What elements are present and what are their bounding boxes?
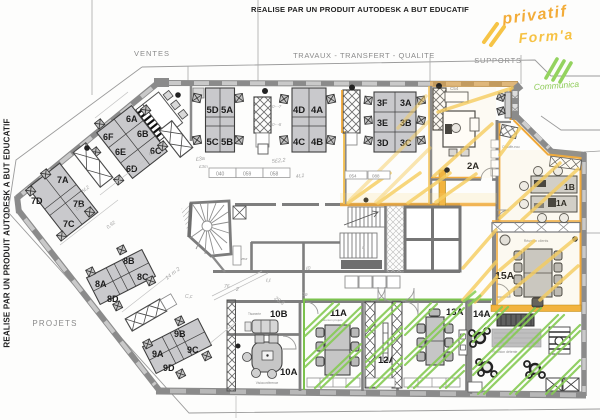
svg-text:054: 054 [349, 174, 357, 179]
svg-text:a: a [362, 245, 365, 251]
svg-text:6D: 6D [126, 164, 138, 174]
svg-text:3E: 3E [377, 118, 388, 128]
svg-text:3F: 3F [377, 98, 388, 108]
svg-text:5B: 5B [221, 137, 233, 148]
svg-text:ℓ0: ℓ0 [305, 266, 311, 272]
svg-text:5A: 5A [221, 105, 233, 116]
svg-text:4D: 4D [293, 105, 305, 116]
svg-text:Tisanerie: Tisanerie [248, 312, 261, 316]
svg-text:10B: 10B [270, 309, 288, 320]
svg-text:14A: 14A [473, 309, 491, 320]
svg-text:3ɵ: 3ɵ [302, 292, 308, 298]
svg-text:7C: 7C [63, 219, 75, 229]
svg-text:088: 088 [372, 174, 380, 179]
svg-text:5C: 5C [207, 137, 219, 148]
svg-text:7D: 7D [31, 196, 43, 206]
svg-text:ℓ,ℓ: ℓ,ℓ [265, 278, 271, 284]
svg-text:6B: 6B [137, 129, 149, 139]
svg-text:REALISE PAR UN PRODUIT AUTODES: REALISE PAR UN PRODUIT AUTODESK A BUT ED… [251, 5, 469, 14]
svg-text:C,c: C,c [185, 294, 193, 300]
svg-text:0⋅⋅⋅7: 0⋅⋅⋅7 [272, 104, 282, 109]
svg-text:059: 059 [243, 172, 252, 178]
svg-text:8B: 8B [123, 256, 135, 266]
svg-text:4A: 4A [311, 105, 323, 116]
svg-text:2: 2 [235, 287, 239, 293]
svg-text:8A: 8A [95, 279, 107, 289]
svg-text:3D: 3D [377, 138, 389, 148]
svg-text:5D: 5D [207, 105, 219, 116]
svg-text:76: 76 [224, 284, 230, 290]
svg-text:TRAVAUX - TRANSFERT - QUALITE: TRAVAUX - TRANSFERT - QUALITE [293, 51, 435, 60]
svg-text:PROJETS: PROJETS [32, 319, 77, 328]
svg-text:058: 058 [270, 172, 279, 178]
svg-text:VENTES: VENTES [134, 49, 170, 58]
svg-text:6A: 6A [126, 114, 138, 124]
svg-text:9C: 9C [187, 345, 199, 355]
svg-text:REALISE PAR UN PRODUIT AUTODES: REALISE PAR UN PRODUIT AUTODESK A BUT ED… [3, 118, 12, 347]
svg-text:9B: 9B [174, 329, 186, 339]
svg-text:9A: 9A [152, 349, 164, 359]
svg-text:£3m: £3m [198, 164, 208, 169]
svg-text:Visioconférence: Visioconférence [256, 381, 279, 385]
svg-text:4C: 4C [293, 137, 305, 148]
svg-text:7A: 7A [57, 175, 69, 185]
svg-text:9D: 9D [163, 363, 175, 373]
svg-text:4B: 4B [311, 137, 323, 148]
svg-text:10A: 10A [280, 367, 298, 378]
svg-text:3A: 3A [400, 98, 412, 108]
svg-text:040: 040 [216, 172, 225, 178]
svg-text:6F: 6F [103, 132, 114, 142]
svg-text:0⋅⋅⋅8: 0⋅⋅⋅8 [272, 122, 282, 127]
svg-text:4ℓ,2: 4ℓ,2 [295, 173, 305, 180]
svg-text:6E: 6E [115, 147, 126, 157]
